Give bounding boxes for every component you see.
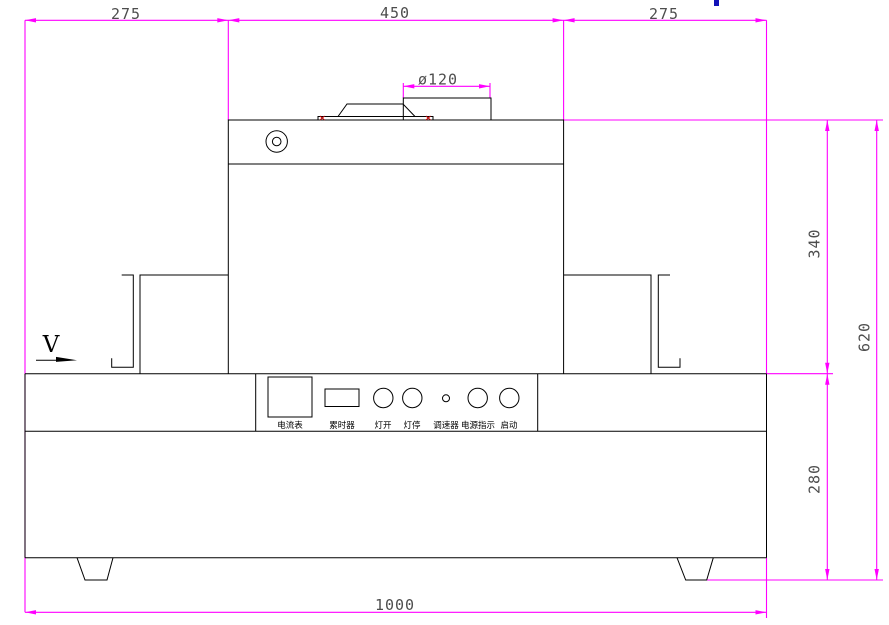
lamp-off-button (403, 388, 422, 407)
timer-box (325, 389, 359, 407)
dim-text-top-left: 275 (111, 5, 141, 23)
guide-bracket-left (112, 275, 134, 367)
arrowhead (553, 18, 564, 22)
arrowhead (825, 569, 829, 580)
dim-text-340: 340 (806, 228, 824, 258)
label-timer: 累时器 (329, 420, 355, 431)
view-label: V (42, 332, 60, 358)
arrowhead (25, 610, 36, 614)
dim-text-1000: 1000 (375, 596, 415, 614)
vent-base-plate (318, 117, 433, 120)
label-start: 启动 (500, 420, 518, 431)
guide-bracket-right (658, 275, 680, 367)
arrowhead (217, 18, 228, 22)
foot-left (77, 558, 113, 580)
arrowhead (228, 18, 239, 22)
arrowhead (825, 363, 829, 374)
dim-text-top-right: 275 (649, 5, 679, 23)
upper-body-outline (228, 120, 563, 374)
lamp-on-button (374, 388, 393, 407)
conveyor-tunnel-left (140, 275, 228, 374)
foot-right (677, 558, 713, 580)
dim-text-280: 280 (806, 464, 824, 494)
start-button (500, 388, 519, 407)
arrowhead (825, 120, 829, 131)
label-lamp-on: 灯开 (374, 420, 392, 431)
arrowhead (875, 120, 879, 131)
dimension-arrowheads (25, 18, 879, 614)
arrowhead (403, 84, 414, 88)
speed-regulator-knob (443, 395, 450, 402)
ammeter-box (268, 377, 312, 417)
dim-text-top-center: 450 (380, 4, 410, 22)
arrowhead (756, 18, 767, 22)
clipped-blue-artifact (714, 0, 719, 6)
arrowhead (825, 374, 829, 385)
latch-outer-circle (266, 131, 287, 152)
arrowhead (25, 18, 36, 22)
engineering-drawing-page: 275 450 275 ø120 340 620 280 1000 V 电流表 … (0, 0, 889, 625)
arrowhead (756, 610, 767, 614)
label-ammeter: 电流表 (277, 420, 303, 431)
dim-text-620: 620 (856, 322, 874, 352)
label-lamp-off: 灯停 (403, 420, 421, 431)
power-indicator-lamp (468, 388, 487, 407)
dim-text-diameter: ø120 (418, 71, 458, 89)
latch-inner-circle (272, 137, 281, 146)
arrowhead (564, 18, 575, 22)
label-power-indicator: 电源指示 (461, 420, 495, 431)
arrowhead (479, 84, 490, 88)
conveyor-tunnel-right (564, 275, 651, 374)
machine-front-view-drawing: 275 450 275 ø120 340 620 280 1000 V 电流表 … (0, 0, 889, 625)
base-cabinet-outline (25, 374, 767, 558)
arrowhead (875, 569, 879, 580)
label-speed-regulator: 调速器 (433, 421, 459, 431)
